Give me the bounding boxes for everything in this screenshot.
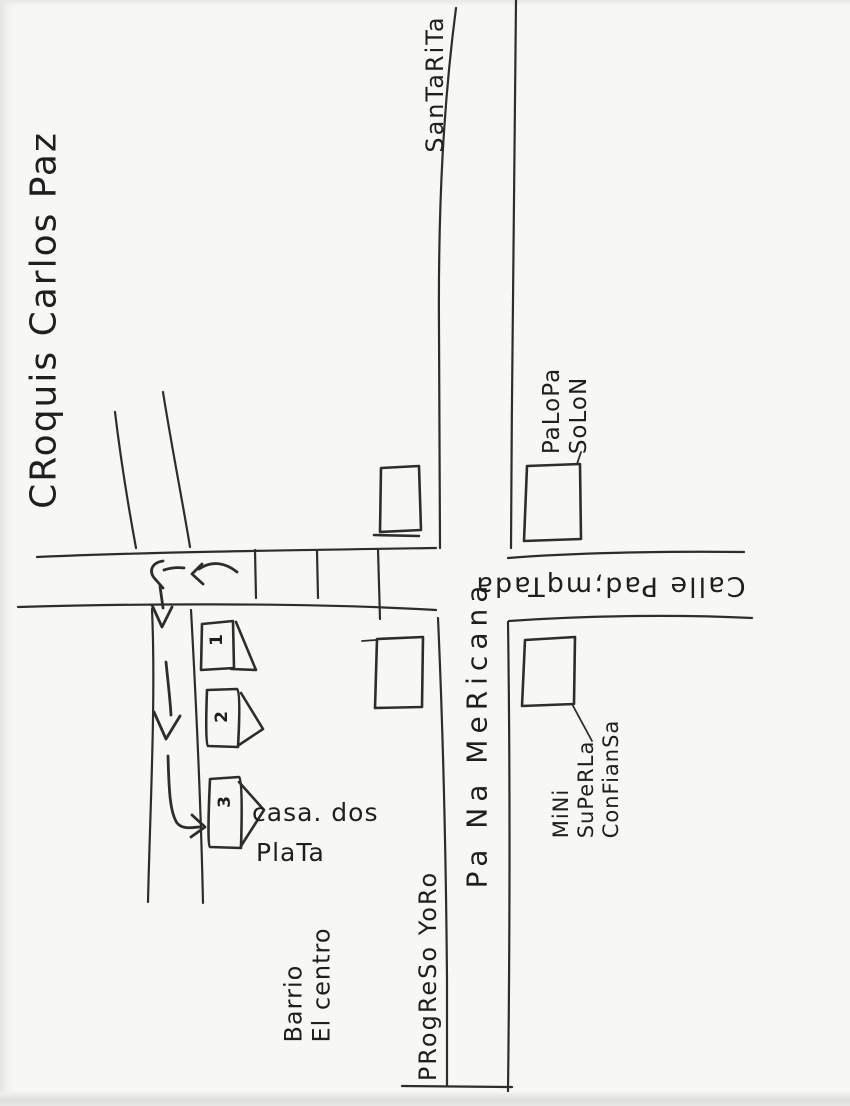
building-northwest [374, 466, 421, 536]
scan-edge-bottom [0, 1092, 850, 1106]
label-mini-line3: ConFianSa [598, 720, 623, 839]
road-panamericana-upper [439, 0, 516, 548]
label-barrio-line1: Barrio [280, 927, 308, 1042]
arrow-turn-left-inner [152, 561, 184, 588]
label-casa-dos-line1: casa. dos [252, 798, 379, 827]
label-barrio-el-centro: Barrio El centro [280, 927, 337, 1042]
label-casa-dos-line2: PlaTa [256, 838, 325, 867]
label-palopa-line1: PaLoPa [539, 368, 566, 454]
map-title: CRoquis Carlos Paz [24, 131, 65, 509]
building-southwest [362, 637, 423, 708]
house-3-number: 3 [215, 796, 235, 808]
arrow-down-short [152, 586, 172, 627]
house-2-number: 2 [212, 711, 232, 723]
label-palopa-line2: SoLoN [566, 368, 593, 454]
label-santa-rita: SanTaRiTa [421, 15, 449, 152]
arrow-left-from-calle [192, 564, 237, 584]
scanned-paper: CRoquis Carlos Paz SanTaRiTa PaLoPa SoLo… [0, 0, 850, 1106]
house-1-number: 1 [207, 634, 227, 646]
street-upper-left [115, 392, 190, 548]
label-panamericana: Pa Na MeRicana [461, 580, 494, 889]
label-progreso-yoro: PRogReSo YoRo [414, 871, 442, 1081]
label-calle-pavimentada: Calle Pad;mqTada [474, 571, 745, 602]
label-barrio-line2: El centro [308, 927, 336, 1042]
street-lower-left [148, 609, 203, 903]
arrow-down-long [154, 662, 180, 739]
building-palopa-salon [524, 452, 581, 541]
label-palopa-salon: PaLoPa SoLoN [539, 368, 593, 454]
label-mini-line1: MiNi [549, 720, 574, 839]
label-mini-super: MiNi SuPeRLa ConFianSa [549, 720, 623, 839]
label-mini-line2: SuPeRLa [574, 720, 599, 839]
